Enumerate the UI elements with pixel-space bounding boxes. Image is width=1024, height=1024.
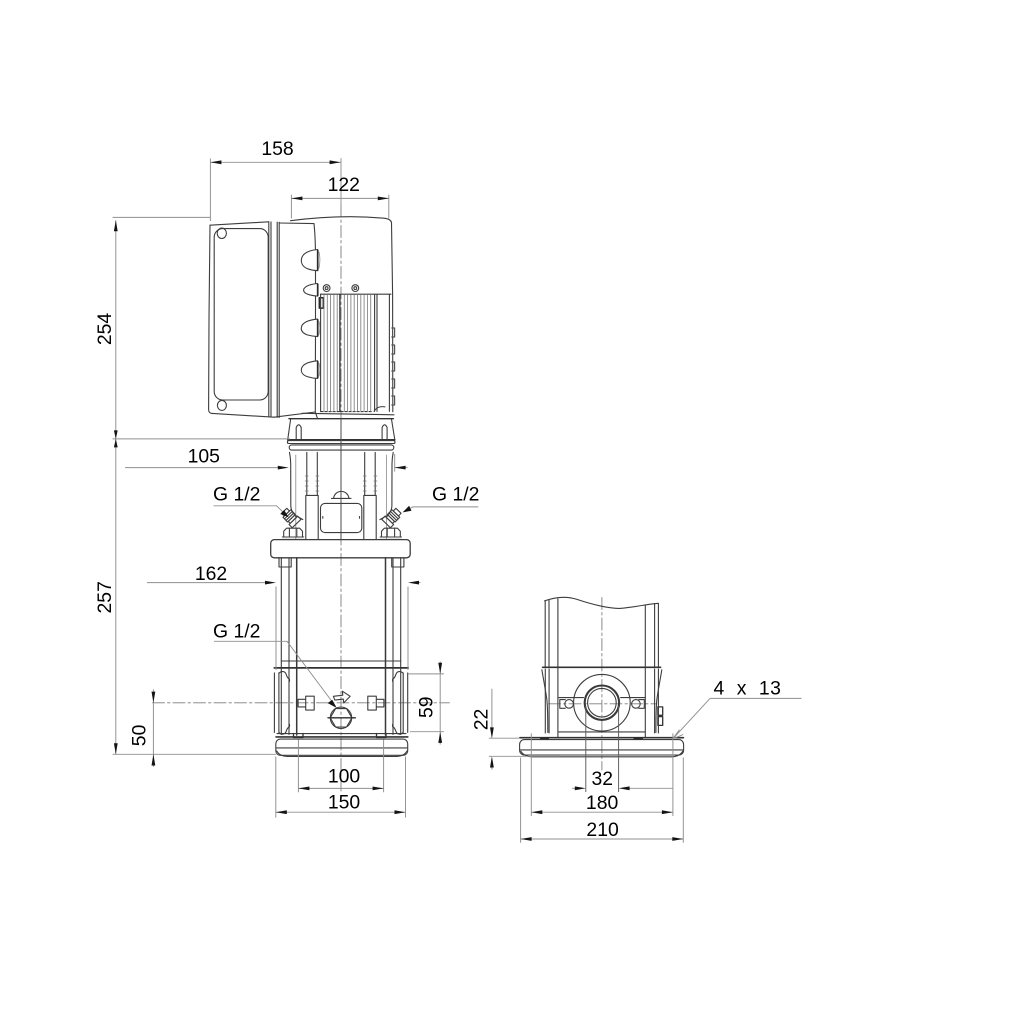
svg-text:50: 50 — [129, 724, 151, 746]
svg-text:105: 105 — [188, 446, 220, 468]
svg-text:180: 180 — [586, 792, 619, 814]
svg-text:32: 32 — [592, 768, 614, 790]
svg-text:254: 254 — [94, 313, 116, 346]
svg-text:G 1/2: G 1/2 — [213, 483, 260, 505]
svg-text:158: 158 — [261, 138, 293, 160]
svg-text:150: 150 — [328, 792, 361, 814]
svg-text:59: 59 — [416, 696, 438, 718]
svg-text:257: 257 — [94, 581, 116, 613]
svg-text:22: 22 — [471, 709, 493, 731]
svg-text:G 1/2: G 1/2 — [432, 483, 479, 505]
svg-text:4 x 13: 4 x 13 — [714, 677, 782, 699]
svg-text:G 1/2: G 1/2 — [213, 620, 260, 642]
svg-text:100: 100 — [328, 766, 361, 788]
svg-text:122: 122 — [328, 174, 360, 196]
svg-text:210: 210 — [586, 819, 619, 841]
svg-text:162: 162 — [195, 563, 227, 585]
